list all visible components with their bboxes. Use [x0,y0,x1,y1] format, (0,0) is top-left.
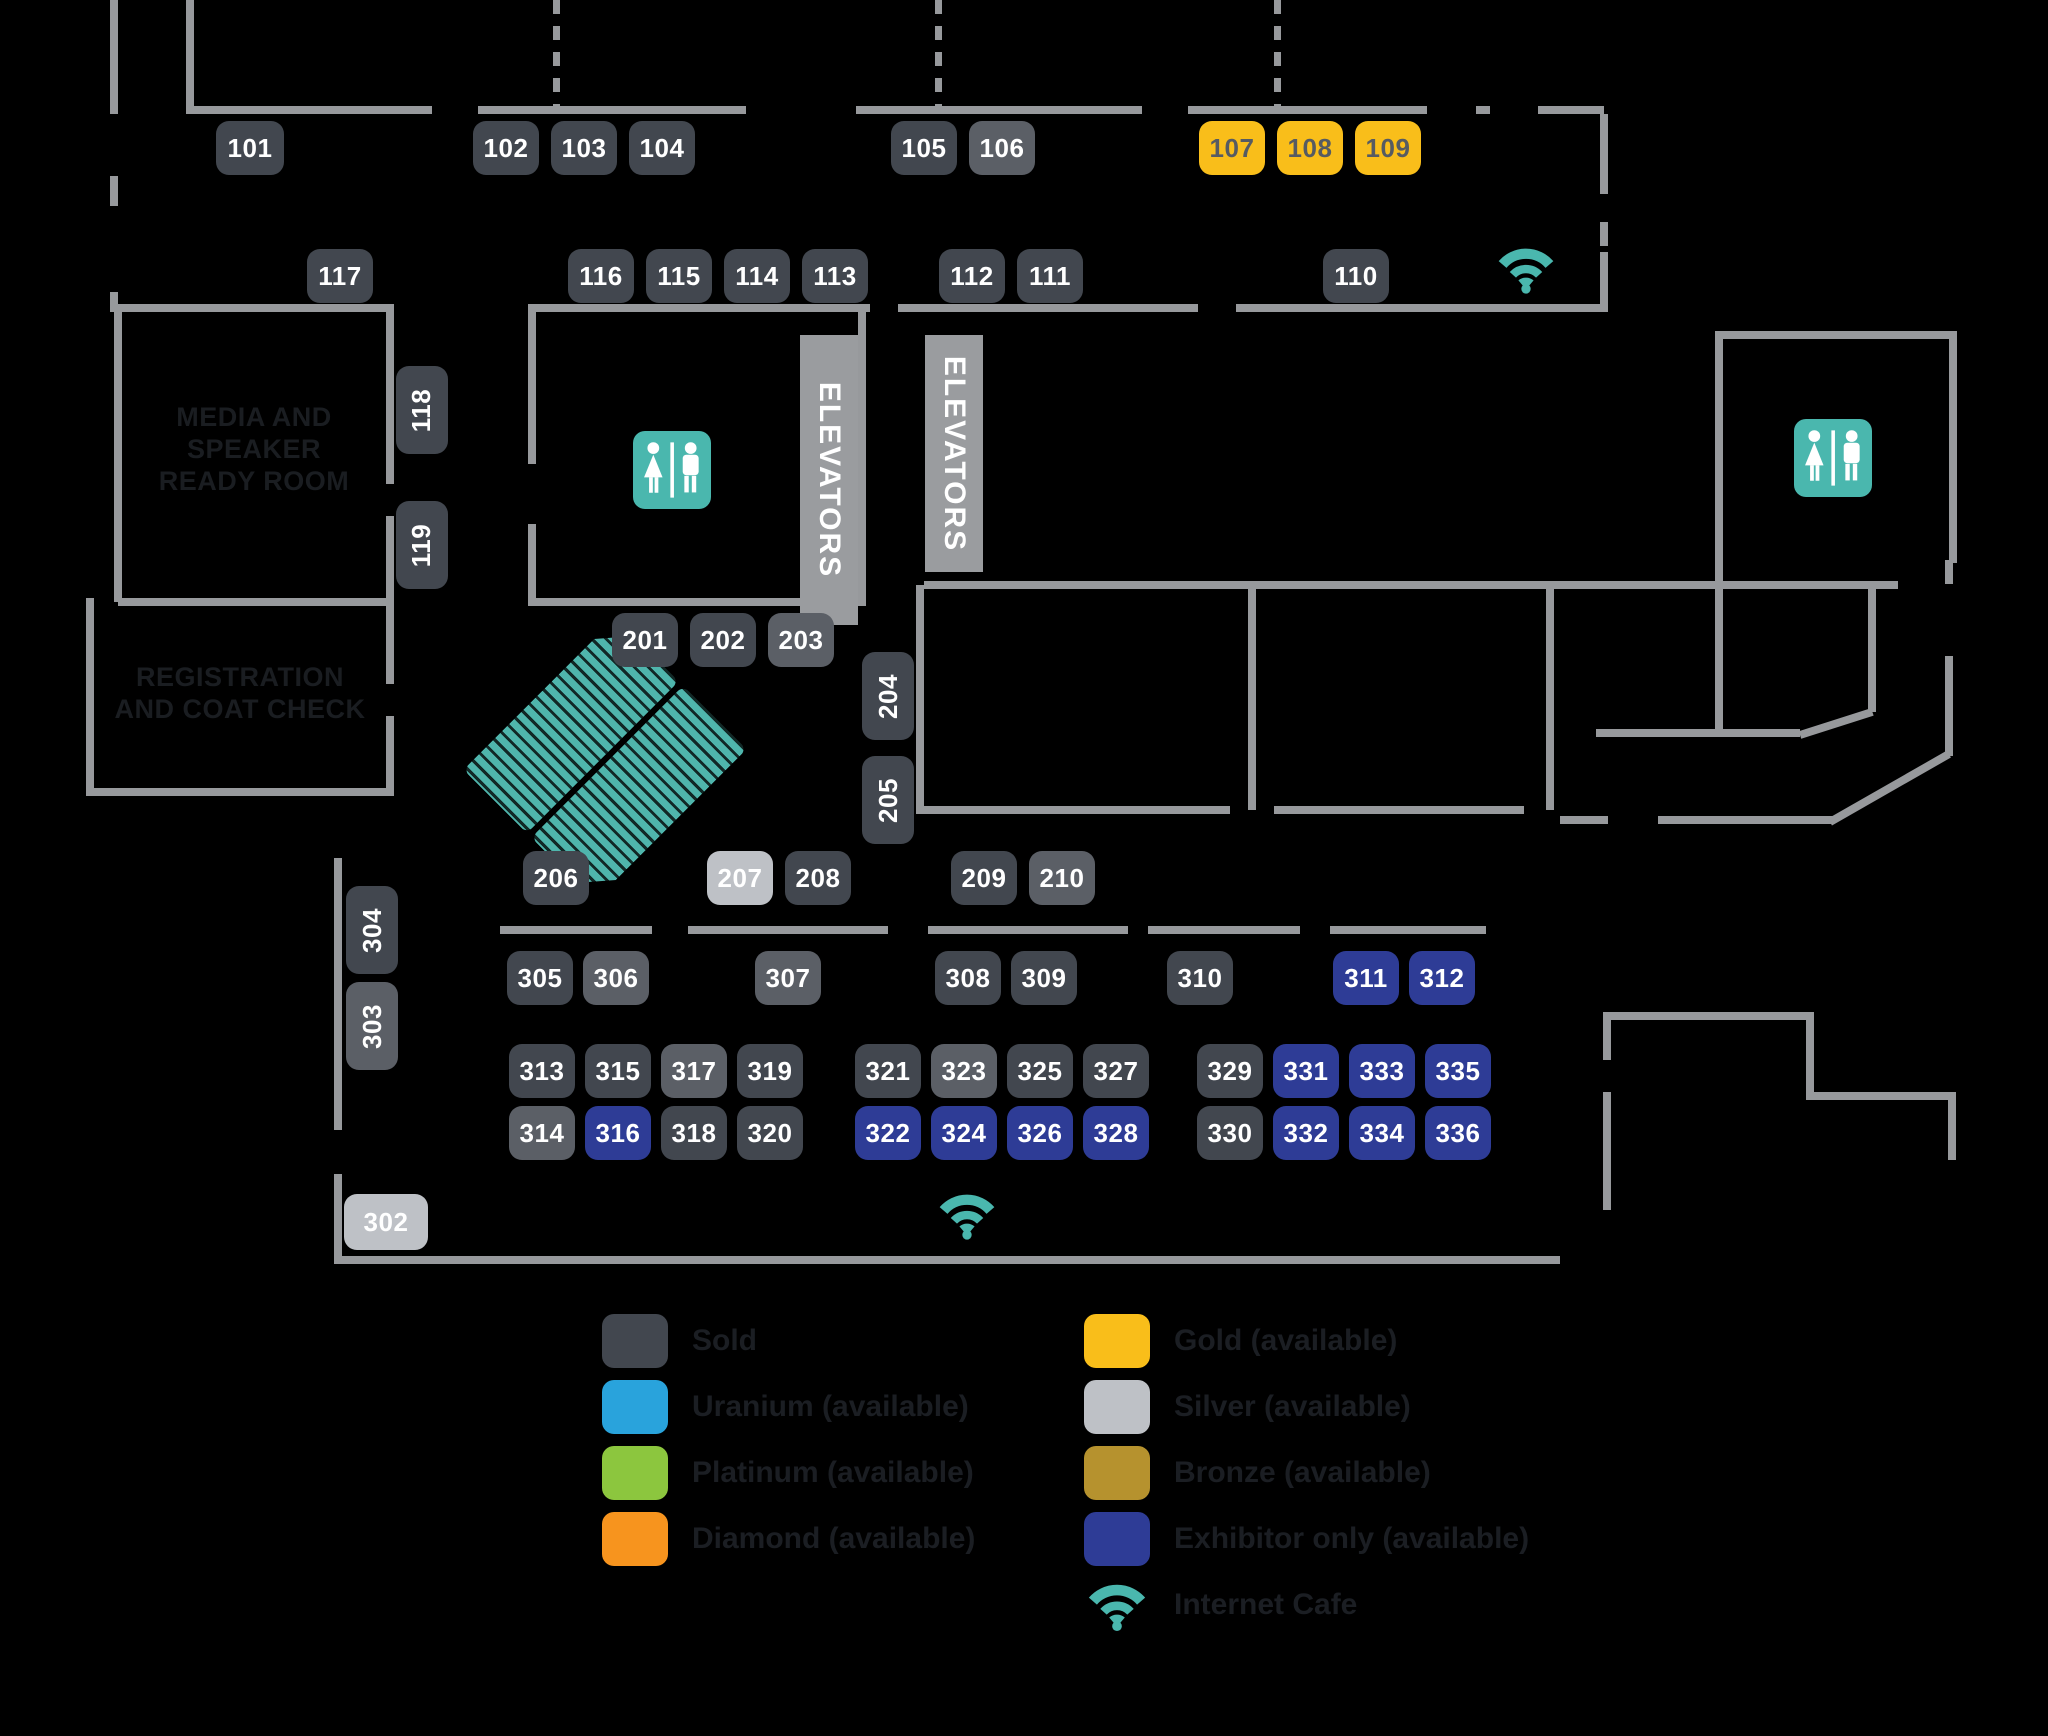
legend-swatch [602,1446,668,1500]
booth-label: 304 [356,908,387,953]
booth-label: 116 [579,261,622,292]
legend-swatch [1084,1446,1150,1500]
booth-313[interactable]: 313 [509,1044,575,1098]
wall [1945,656,1953,756]
internet-cafe-icon [1084,1578,1150,1632]
booth-label: 314 [520,1118,565,1149]
booth-203[interactable]: 203 [768,613,834,667]
booth-label: 203 [779,625,824,656]
restroom-icon [633,431,711,509]
legend-row-right-2: Bronze (available) [1084,1446,1431,1500]
booth-334[interactable]: 334 [1349,1106,1415,1160]
wall [1538,106,1604,114]
booth-label: 329 [1208,1056,1253,1087]
booth-320[interactable]: 320 [737,1106,803,1160]
booth-label: 313 [520,1056,565,1087]
wall [118,598,390,606]
booth-319[interactable]: 319 [737,1044,803,1098]
booth-label: 309 [1022,963,1067,994]
wall [478,106,746,114]
booth-306[interactable]: 306 [583,951,649,1005]
booth-label: 302 [364,1207,409,1238]
booth-314[interactable]: 314 [509,1106,575,1160]
legend-swatch [602,1380,668,1434]
legend-swatch [1084,1314,1150,1368]
room-label-registration-coat-check: REGISTRATION AND COAT CHECK [85,662,395,726]
booth-304[interactable]: 304 [346,886,398,974]
booth-333[interactable]: 333 [1349,1044,1415,1098]
booth-label: 103 [562,133,607,164]
booth-110[interactable]: 110 [1323,249,1389,303]
wall [386,516,394,606]
room-label-media-speaker-ready-room: MEDIA AND SPEAKER READY ROOM [114,402,394,498]
booth-207[interactable]: 207 [707,851,773,905]
legend-label: Sold [692,1324,757,1358]
booth-label: 117 [318,261,361,292]
booth-label: 207 [718,863,763,894]
booth-112[interactable]: 112 [939,249,1005,303]
booth-307[interactable]: 307 [755,951,821,1005]
booth-label: 104 [640,133,685,164]
diagonal-wall [1799,708,1873,739]
booth-label: 206 [534,863,579,894]
elevator-banner: ELEVATORS [800,335,858,625]
booth-322[interactable]: 322 [855,1106,921,1160]
wall [1948,1100,1956,1160]
booth-335[interactable]: 335 [1425,1044,1491,1098]
legend-row-left-2: Platinum (available) [602,1446,974,1500]
wall [858,304,866,606]
wall [688,926,888,934]
booth-label: 322 [866,1118,911,1149]
booth-109[interactable]: 109 [1355,121,1421,175]
booth-label: 328 [1094,1118,1139,1149]
wall [1658,816,1834,824]
wall [110,292,118,312]
wall [856,106,1142,114]
booth-label: 305 [518,963,563,994]
wall [1236,304,1604,312]
wall [1248,589,1256,810]
wall [1188,106,1427,114]
booth-105[interactable]: 105 [891,121,957,175]
wall [1600,222,1608,246]
booth-label: 201 [623,625,668,656]
booth-label: 308 [946,963,991,994]
booth-104[interactable]: 104 [629,121,695,175]
booth-325[interactable]: 325 [1007,1044,1073,1098]
booth-117[interactable]: 117 [307,249,373,303]
dashed-wall [553,0,560,106]
wall [1945,560,1953,584]
booth-205[interactable]: 205 [862,756,914,844]
wall [118,304,390,312]
booth-label: 307 [766,963,811,994]
booth-315[interactable]: 315 [585,1044,651,1098]
booth-308[interactable]: 308 [935,951,1001,1005]
booth-label: 106 [980,133,1025,164]
wall [1715,331,1723,585]
booth-label: 331 [1284,1056,1329,1087]
booth-label: 327 [1094,1056,1139,1087]
wall [916,806,1230,814]
wifi-icon [1496,242,1556,295]
booth-label: 114 [735,261,778,292]
diagonal-wall [1828,751,1951,826]
booth-316[interactable]: 316 [585,1106,651,1160]
legend-row-right-0: Gold (available) [1084,1314,1397,1368]
booth-310[interactable]: 310 [1167,951,1233,1005]
legend-swatch [1084,1380,1150,1434]
wall [1603,1092,1611,1210]
booth-label: 319 [748,1056,793,1087]
wall [1560,816,1608,824]
booth-332[interactable]: 332 [1273,1106,1339,1160]
booth-323[interactable]: 323 [931,1044,997,1098]
wall [186,0,194,114]
booth-label: 102 [484,133,529,164]
booth-114[interactable]: 114 [724,249,790,303]
booth-label: 202 [701,625,746,656]
dashed-wall [935,0,942,106]
legend-label: Uranium (available) [692,1390,969,1424]
booth-108[interactable]: 108 [1277,121,1343,175]
booth-label: 303 [356,1004,387,1049]
booth-label: 311 [1344,963,1387,994]
booth-label: 312 [1420,963,1465,994]
booth-label: 204 [872,674,903,719]
booth-label: 118 [406,388,437,431]
wall [1719,331,1957,339]
legend-label: Diamond (available) [692,1522,975,1556]
booth-311[interactable]: 311 [1333,951,1399,1005]
wall [1330,926,1486,934]
booth-317[interactable]: 317 [661,1044,727,1098]
elevator-label: ELEVATORS [937,355,971,551]
wall [90,788,390,796]
wall [1715,589,1723,737]
legend-label: Gold (available) [1174,1324,1397,1358]
booth-label: 336 [1436,1118,1481,1149]
legend-row-right-1: Silver (available) [1084,1380,1411,1434]
legend-row-right-4: Internet Cafe [1084,1578,1357,1632]
wall [916,585,924,814]
booth-label: 101 [228,133,273,164]
wall [1868,589,1876,712]
wall [1607,1012,1810,1020]
wall [1600,114,1608,194]
booth-label: 335 [1436,1056,1481,1087]
wall [928,926,1128,934]
legend-swatch [1084,1512,1150,1566]
legend-row-left-0: Sold [602,1314,757,1368]
wall [1546,589,1554,810]
booth-204[interactable]: 204 [862,652,914,740]
booth-label: 111 [1029,261,1071,292]
booth-328[interactable]: 328 [1083,1106,1149,1160]
wall [334,1174,342,1264]
wall [1600,252,1608,312]
wall [338,1256,1560,1264]
booth-305[interactable]: 305 [507,951,573,1005]
wall [1810,1092,1956,1100]
legend-label: Platinum (available) [692,1456,974,1490]
booth-label: 315 [596,1056,641,1087]
booth-107[interactable]: 107 [1199,121,1265,175]
booth-118[interactable]: 118 [396,366,448,454]
booth-label: 320 [748,1118,793,1149]
booth-115[interactable]: 115 [646,249,712,303]
booth-113[interactable]: 113 [802,249,868,303]
booth-326[interactable]: 326 [1007,1106,1073,1160]
booth-101[interactable]: 101 [216,121,284,175]
legend-row-left-3: Diamond (available) [602,1512,975,1566]
booth-label: 310 [1178,963,1223,994]
booth-label: 208 [796,863,841,894]
wall [528,304,536,464]
booth-label: 105 [902,133,947,164]
wall [1806,1012,1814,1100]
wall [1949,331,1957,563]
legend-row-right-3: Exhibitor only (available) [1084,1512,1529,1566]
legend-swatch [602,1512,668,1566]
legend-label: Exhibitor only (available) [1174,1522,1529,1556]
booth-206[interactable]: 206 [523,851,589,905]
restroom-icon [1794,419,1872,497]
booth-302[interactable]: 302 [344,1194,428,1250]
wall [924,581,1898,589]
wall [1148,926,1300,934]
booth-label: 109 [1366,133,1411,164]
wall [898,304,1198,312]
booth-label: 324 [942,1118,987,1149]
booth-303[interactable]: 303 [346,982,398,1070]
booth-103[interactable]: 103 [551,121,617,175]
wall [386,716,394,796]
booth-label: 112 [950,261,993,292]
booth-label: 317 [672,1056,717,1087]
booth-330[interactable]: 330 [1197,1106,1263,1160]
booth-210[interactable]: 210 [1029,851,1095,905]
booth-label: 209 [962,863,1007,894]
booth-label: 326 [1018,1118,1063,1149]
wall [500,926,652,934]
booth-111[interactable]: 111 [1017,249,1083,303]
booth-202[interactable]: 202 [690,613,756,667]
booth-119[interactable]: 119 [396,501,448,589]
booth-label: 115 [657,261,700,292]
booth-106[interactable]: 106 [969,121,1035,175]
wall [532,304,870,312]
wifi-icon [937,1188,997,1241]
wall [110,0,118,114]
booth-label: 333 [1360,1056,1405,1087]
booth-label: 321 [866,1056,911,1087]
booth-324[interactable]: 324 [931,1106,997,1160]
booth-label: 210 [1040,863,1085,894]
legend-swatch [602,1314,668,1368]
dashed-wall [1274,0,1281,106]
legend-row-left-1: Uranium (available) [602,1380,969,1434]
booth-label: 119 [406,523,437,566]
wall [528,524,536,606]
booth-201[interactable]: 201 [612,613,678,667]
booth-336[interactable]: 336 [1425,1106,1491,1160]
booth-116[interactable]: 116 [568,249,634,303]
booth-label: 110 [1334,261,1377,292]
booth-309[interactable]: 309 [1011,951,1077,1005]
booth-321[interactable]: 321 [855,1044,921,1098]
wall [1596,729,1800,737]
booth-label: 334 [1360,1118,1405,1149]
wall [1274,806,1524,814]
booth-label: 113 [813,261,856,292]
booth-label: 205 [872,778,903,823]
booth-312[interactable]: 312 [1409,951,1475,1005]
booth-331[interactable]: 331 [1273,1044,1339,1098]
booth-label: 306 [594,963,639,994]
booth-102[interactable]: 102 [473,121,539,175]
booth-label: 316 [596,1118,641,1149]
booth-label: 318 [672,1118,717,1149]
wall [1476,106,1490,114]
booth-318[interactable]: 318 [661,1106,727,1160]
booth-label: 325 [1018,1056,1063,1087]
legend-label: Silver (available) [1174,1390,1411,1424]
booth-327[interactable]: 327 [1083,1044,1149,1098]
booth-329[interactable]: 329 [1197,1044,1263,1098]
booth-label: 107 [1210,133,1255,164]
booth-label: 330 [1208,1118,1253,1149]
elevator-banner: ELEVATORS [925,335,983,572]
legend-label: Internet Cafe [1174,1588,1357,1622]
booth-label: 108 [1288,133,1333,164]
wall [110,176,118,206]
booth-label: 323 [942,1056,987,1087]
booth-208[interactable]: 208 [785,851,851,905]
floor-plan-canvas: MEDIA AND SPEAKER READY ROOMREGISTRATION… [0,0,2048,1736]
legend-label: Bronze (available) [1174,1456,1431,1490]
wall [190,106,432,114]
booth-209[interactable]: 209 [951,851,1017,905]
booth-label: 332 [1284,1118,1329,1149]
wall [334,858,342,1130]
elevator-label: ELEVATORS [812,382,846,578]
